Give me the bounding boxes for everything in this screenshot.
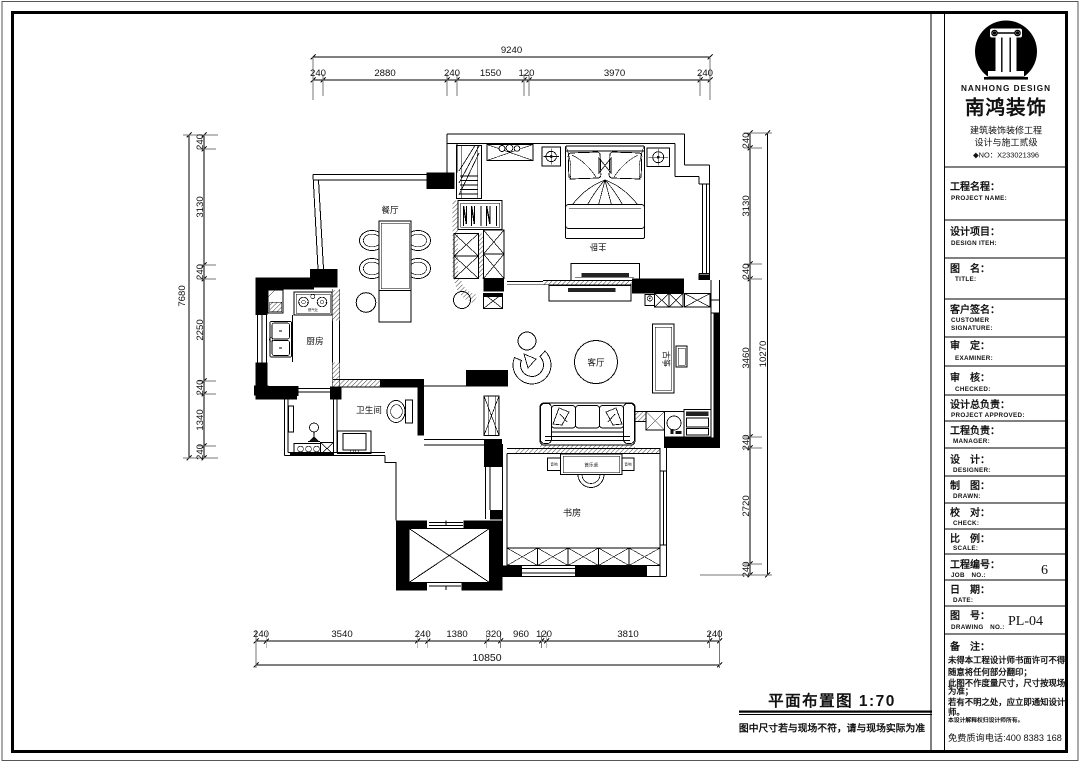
svg-text:240: 240 — [195, 444, 206, 460]
svg-text:1380: 1380 — [446, 629, 467, 640]
svg-text:DESIGN ITEH:: DESIGN ITEH: — [951, 240, 997, 247]
svg-text:NANHONG DESIGN: NANHONG DESIGN — [961, 84, 1051, 93]
svg-text:未得本工程设计师书面许可不得: 未得本工程设计师书面许可不得 — [947, 655, 1066, 665]
svg-text:图 名：: 图 名： — [950, 262, 990, 275]
svg-text:7680: 7680 — [177, 285, 188, 306]
svg-text:3970: 3970 — [604, 68, 625, 79]
svg-text:3130: 3130 — [195, 196, 206, 217]
svg-text:1340: 1340 — [195, 409, 206, 430]
svg-text:平面布置图 1:70: 平面布置图 1:70 — [768, 691, 896, 710]
svg-text:图中尺寸若与现场不符，请与现场实际为准: 图中尺寸若与现场不符，请与现场实际为准 — [739, 722, 925, 735]
svg-text:设计项目：: 设计项目： — [950, 225, 1000, 238]
svg-text:◆NO：X233021396: ◆NO：X233021396 — [973, 151, 1039, 160]
svg-text:CHECKED:: CHECKED: — [955, 386, 991, 393]
svg-text:2720: 2720 — [741, 495, 752, 516]
svg-text:工程负责：: 工程负责： — [950, 424, 1000, 437]
svg-text:3130: 3130 — [741, 195, 752, 216]
svg-text:240: 240 — [741, 434, 752, 450]
svg-text:320: 320 — [486, 629, 502, 640]
svg-text:为准；: 为准； — [948, 686, 973, 697]
svg-text:音响: 音响 — [550, 462, 558, 467]
svg-text:随意将任何部分翻印；: 随意将任何部分翻印； — [948, 667, 1032, 678]
svg-text:9240: 9240 — [501, 45, 522, 56]
svg-text:师。: 师。 — [948, 707, 965, 717]
svg-text:音响: 音响 — [624, 462, 632, 467]
svg-text:240: 240 — [253, 629, 269, 640]
svg-text:DESIGNER:: DESIGNER: — [953, 467, 991, 474]
svg-text:工程编号：: 工程编号： — [950, 558, 1000, 571]
svg-text:图 号：: 图 号： — [950, 610, 990, 622]
svg-text:CHECK:: CHECK: — [953, 520, 979, 527]
svg-text:工程名程：: 工程名程： — [950, 180, 1000, 193]
svg-text:120: 120 — [536, 629, 552, 640]
svg-text:审 定：: 审 定： — [950, 339, 990, 352]
svg-text:960: 960 — [513, 629, 529, 640]
svg-text:设计总负责：: 设计总负责： — [950, 398, 1010, 411]
svg-text:设 计：: 设 计： — [950, 453, 990, 466]
svg-text:240: 240 — [444, 68, 460, 79]
svg-text:3540: 3540 — [331, 629, 352, 640]
svg-text:TITLE:: TITLE: — [955, 276, 976, 283]
svg-text:燃气灶: 燃气灶 — [308, 307, 319, 312]
svg-text:书房: 书房 — [563, 507, 581, 518]
svg-text:3460: 3460 — [741, 347, 752, 368]
svg-text:古筝: 古筝 — [662, 351, 672, 367]
svg-text:MANAGER:: MANAGER: — [953, 438, 990, 445]
svg-text:240: 240 — [310, 68, 326, 79]
svg-text:CUSTOMER: CUSTOMER — [951, 317, 989, 324]
svg-text:制 图：: 制 图： — [950, 479, 990, 492]
svg-text:240: 240 — [195, 379, 206, 395]
svg-text:免费质询电话:400 8383 168: 免费质询电话:400 8383 168 — [948, 732, 1062, 743]
svg-text:240: 240 — [697, 68, 713, 79]
svg-text:240: 240 — [741, 263, 752, 279]
svg-text:校 对：: 校 对： — [950, 506, 990, 519]
svg-text:厨房: 厨房 — [306, 335, 323, 346]
svg-text:餐厅: 餐厅 — [381, 205, 399, 215]
svg-text:PL-04: PL-04 — [1008, 614, 1043, 629]
svg-text:10850: 10850 — [472, 652, 501, 664]
svg-text:SIGNATURE:: SIGNATURE: — [951, 325, 993, 332]
svg-text:2250: 2250 — [195, 319, 206, 340]
svg-text:SCALE:: SCALE: — [953, 545, 978, 552]
svg-text:DRAWING NO.:: DRAWING NO.: — [951, 624, 1005, 631]
svg-text:240: 240 — [741, 561, 752, 577]
svg-text:建筑装饰装修工程: 建筑装饰装修工程 — [970, 125, 1042, 136]
svg-text:备 注：: 备 注： — [949, 640, 990, 653]
svg-text:240: 240 — [195, 264, 206, 280]
svg-text:240: 240 — [195, 134, 206, 150]
svg-text:南鸿装饰: 南鸿装饰 — [965, 96, 1047, 119]
svg-text:3810: 3810 — [617, 629, 638, 640]
svg-text:日 期：: 日 期： — [950, 583, 990, 596]
svg-text:10270: 10270 — [758, 341, 769, 368]
svg-text:客厅: 客厅 — [587, 357, 605, 368]
svg-text:审 核：: 审 核： — [950, 371, 990, 384]
svg-text:240: 240 — [706, 629, 722, 640]
svg-text:比 例：: 比 例： — [950, 532, 990, 545]
svg-text:JOB NO.:: JOB NO.: — [951, 572, 986, 579]
svg-text:若有不明之处，应立即通知设计: 若有不明之处，应立即通知设计 — [947, 697, 1066, 707]
svg-text:DRAWN:: DRAWN: — [953, 493, 981, 500]
svg-text:6: 6 — [1041, 563, 1048, 578]
svg-text:240: 240 — [415, 629, 431, 640]
svg-text:1550: 1550 — [480, 68, 501, 79]
svg-text:PROJECT APPROVED:: PROJECT APPROVED: — [951, 412, 1025, 419]
svg-text:设计与施工贰级: 设计与施工贰级 — [974, 137, 1037, 148]
svg-text:2880: 2880 — [374, 68, 395, 79]
svg-text:120: 120 — [518, 68, 534, 79]
svg-text:EXAMINER:: EXAMINER: — [955, 355, 993, 362]
svg-text:PROJECT NAME:: PROJECT NAME: — [951, 195, 1007, 202]
svg-text:本设计解释权归设计师所有。: 本设计解释权归设计师所有。 — [948, 716, 1023, 724]
svg-text:首乐桌: 首乐桌 — [584, 462, 598, 469]
svg-text:卫生间: 卫生间 — [356, 404, 382, 415]
svg-text:主卧: 主卧 — [589, 242, 607, 253]
svg-text:DATE:: DATE: — [953, 597, 973, 604]
svg-text:客户签名：: 客户签名： — [949, 303, 1000, 316]
svg-text:240: 240 — [741, 132, 752, 148]
